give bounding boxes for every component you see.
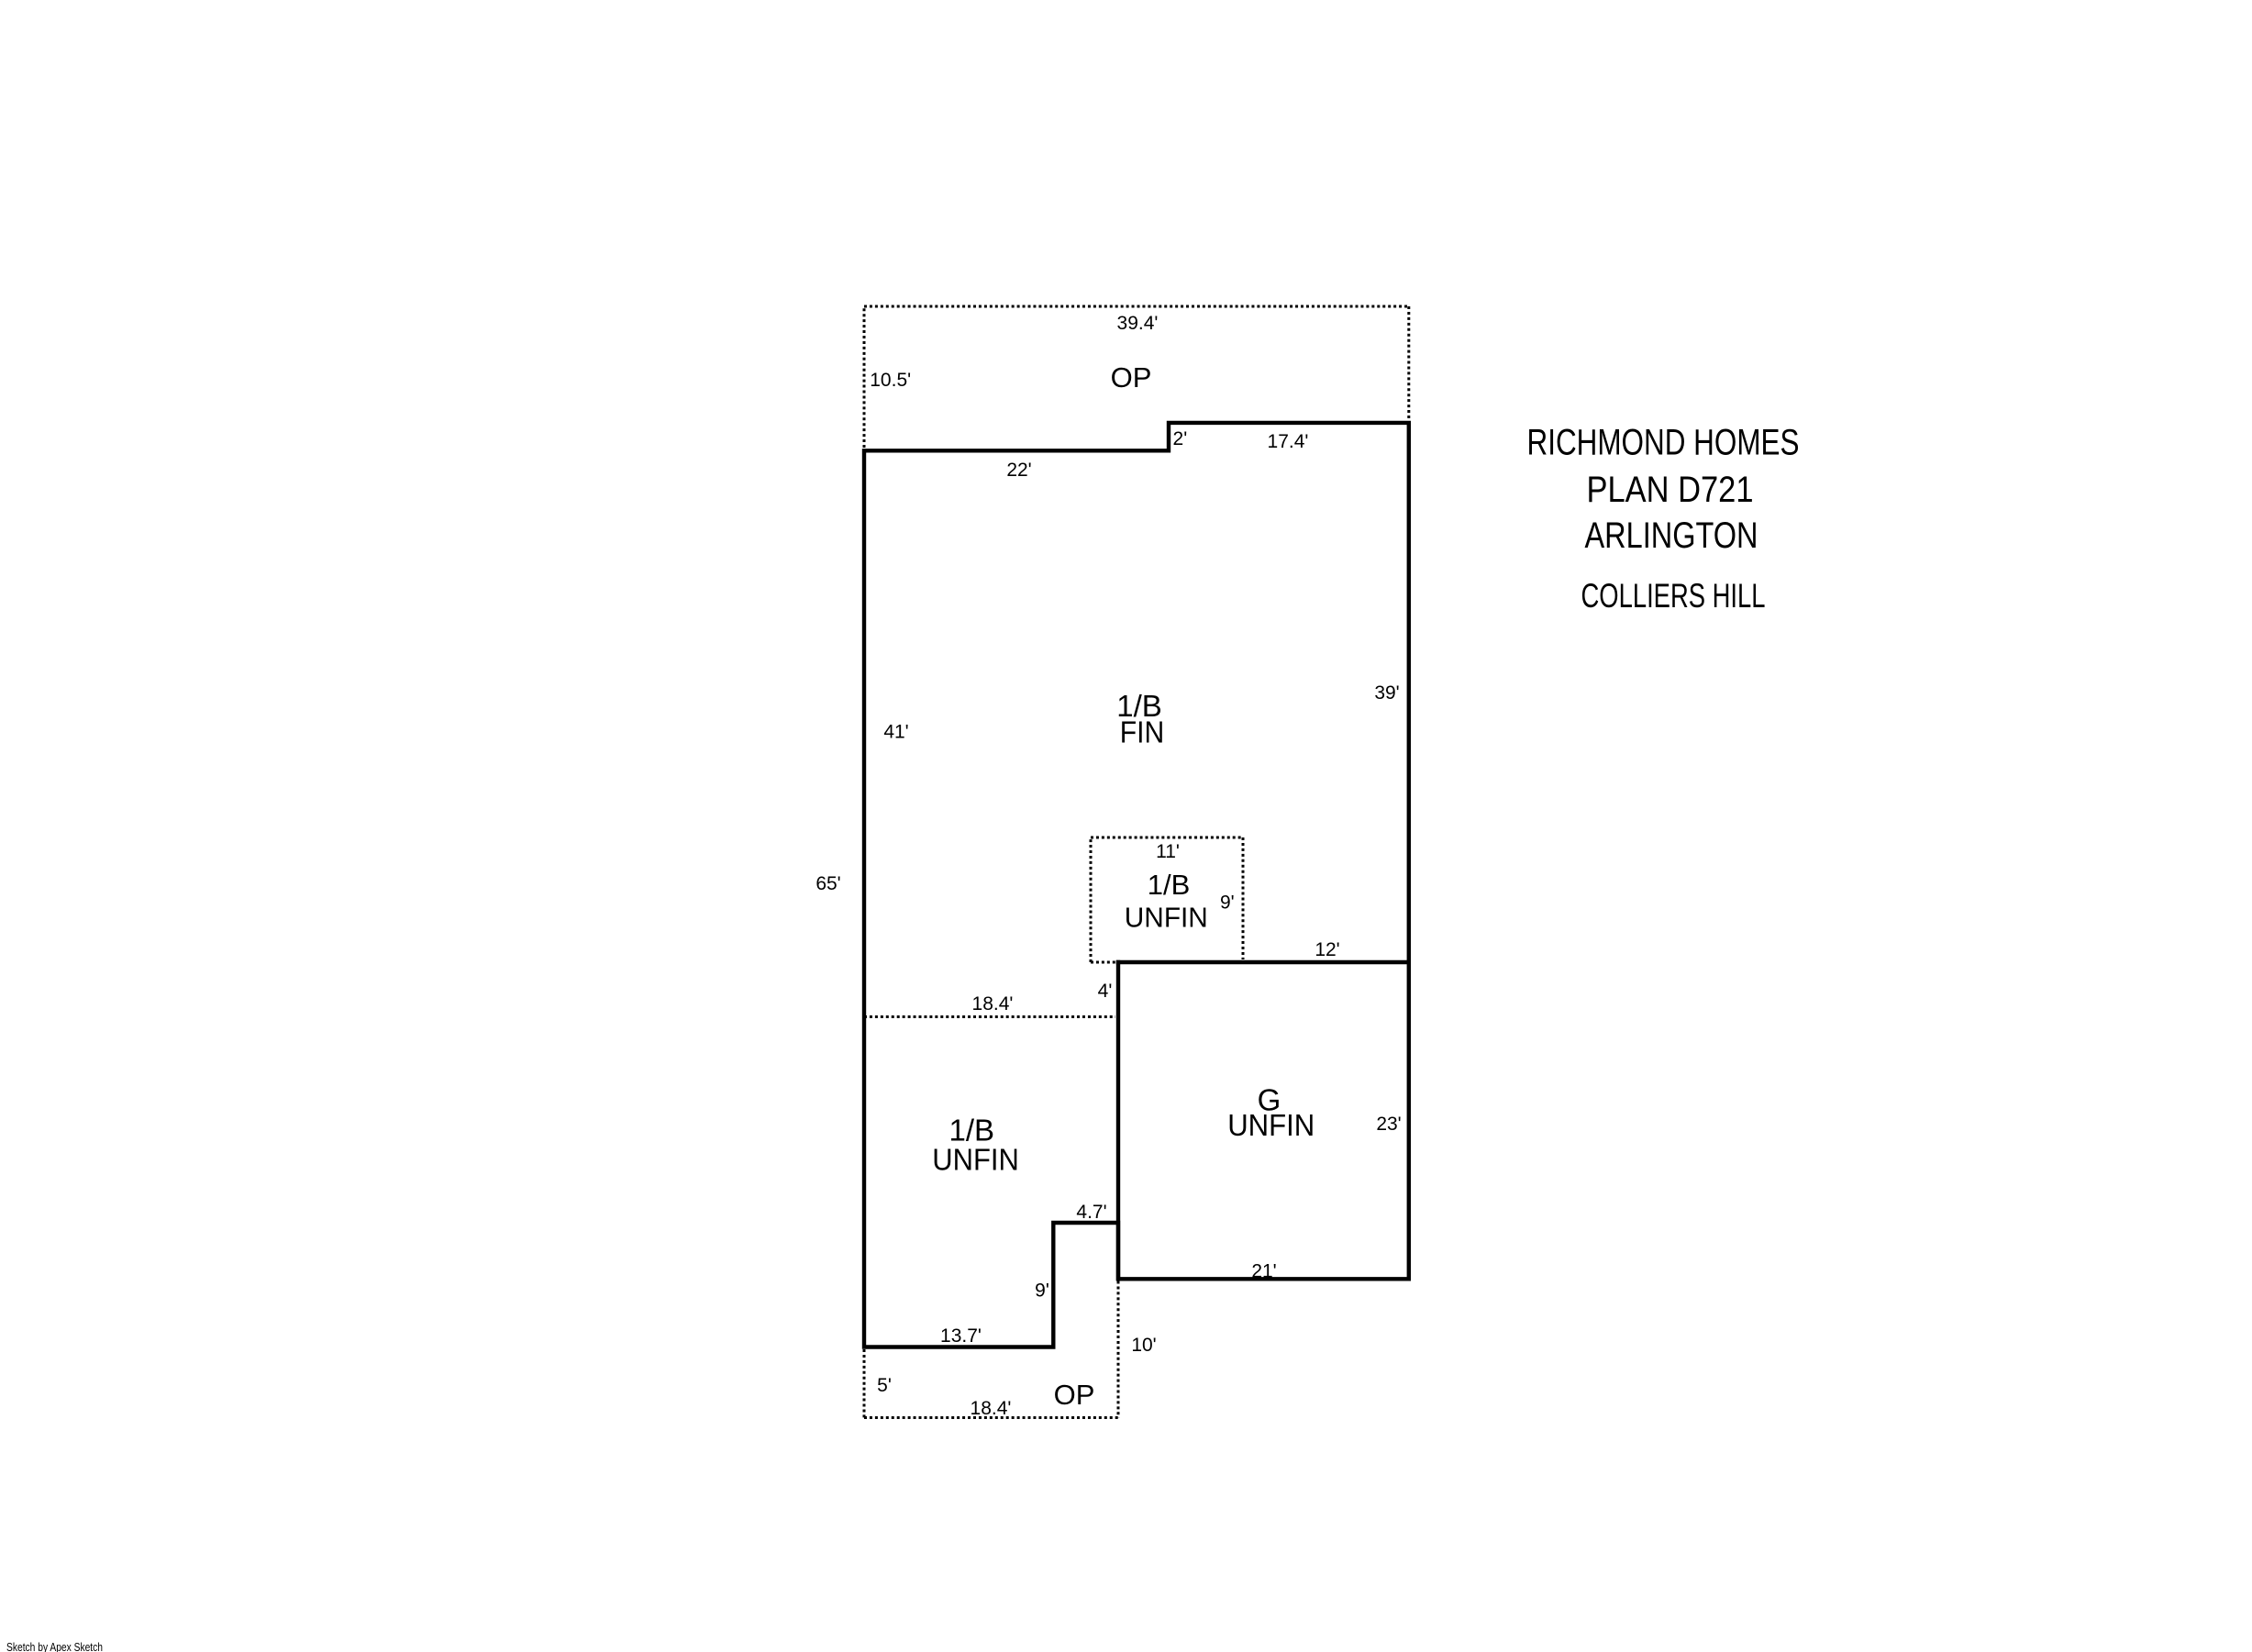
- svg-text:41': 41': [883, 722, 908, 743]
- svg-text:18.4': 18.4': [972, 993, 1014, 1014]
- svg-text:PLAN D721: PLAN D721: [1587, 470, 1754, 510]
- svg-text:5': 5': [877, 1375, 892, 1396]
- svg-text:22': 22': [1006, 460, 1031, 481]
- svg-text:23': 23': [1376, 1114, 1401, 1135]
- svg-text:21': 21': [1251, 1261, 1276, 1282]
- svg-text:9': 9': [1220, 893, 1235, 914]
- svg-text:UNFIN: UNFIN: [1227, 1108, 1315, 1142]
- svg-text:9': 9': [1035, 1281, 1049, 1302]
- svg-text:UNFIN: UNFIN: [1125, 902, 1208, 934]
- svg-text:Sketch by Apex Sketch: Sketch by Apex Sketch: [6, 1640, 103, 1652]
- svg-text:10.5': 10.5': [870, 370, 911, 391]
- svg-text:4.7': 4.7': [1076, 1202, 1106, 1223]
- svg-text:4': 4': [1098, 981, 1113, 1002]
- svg-text:18.4': 18.4': [971, 1398, 1012, 1419]
- svg-text:11': 11': [1156, 841, 1180, 862]
- svg-text:COLLIERS HILL: COLLIERS HILL: [1581, 577, 1766, 615]
- svg-text:UNFIN: UNFIN: [932, 1143, 1019, 1177]
- svg-text:12': 12': [1315, 939, 1339, 960]
- svg-text:65': 65': [815, 873, 840, 894]
- svg-text:1/B: 1/B: [1148, 869, 1191, 901]
- svg-text:ARLINGTON: ARLINGTON: [1585, 516, 1758, 556]
- svg-text:17.4': 17.4': [1268, 431, 1309, 452]
- svg-text:OP: OP: [1054, 1379, 1095, 1411]
- svg-text:RICHMOND HOMES: RICHMOND HOMES: [1527, 423, 1800, 463]
- svg-text:OP: OP: [1111, 361, 1152, 394]
- svg-text:10': 10': [1131, 1335, 1156, 1356]
- svg-text:39': 39': [1374, 682, 1399, 704]
- svg-text:2': 2': [1173, 428, 1188, 449]
- svg-text:FIN: FIN: [1120, 715, 1165, 749]
- svg-text:13.7': 13.7': [940, 1325, 982, 1347]
- svg-text:39.4': 39.4': [1117, 313, 1159, 334]
